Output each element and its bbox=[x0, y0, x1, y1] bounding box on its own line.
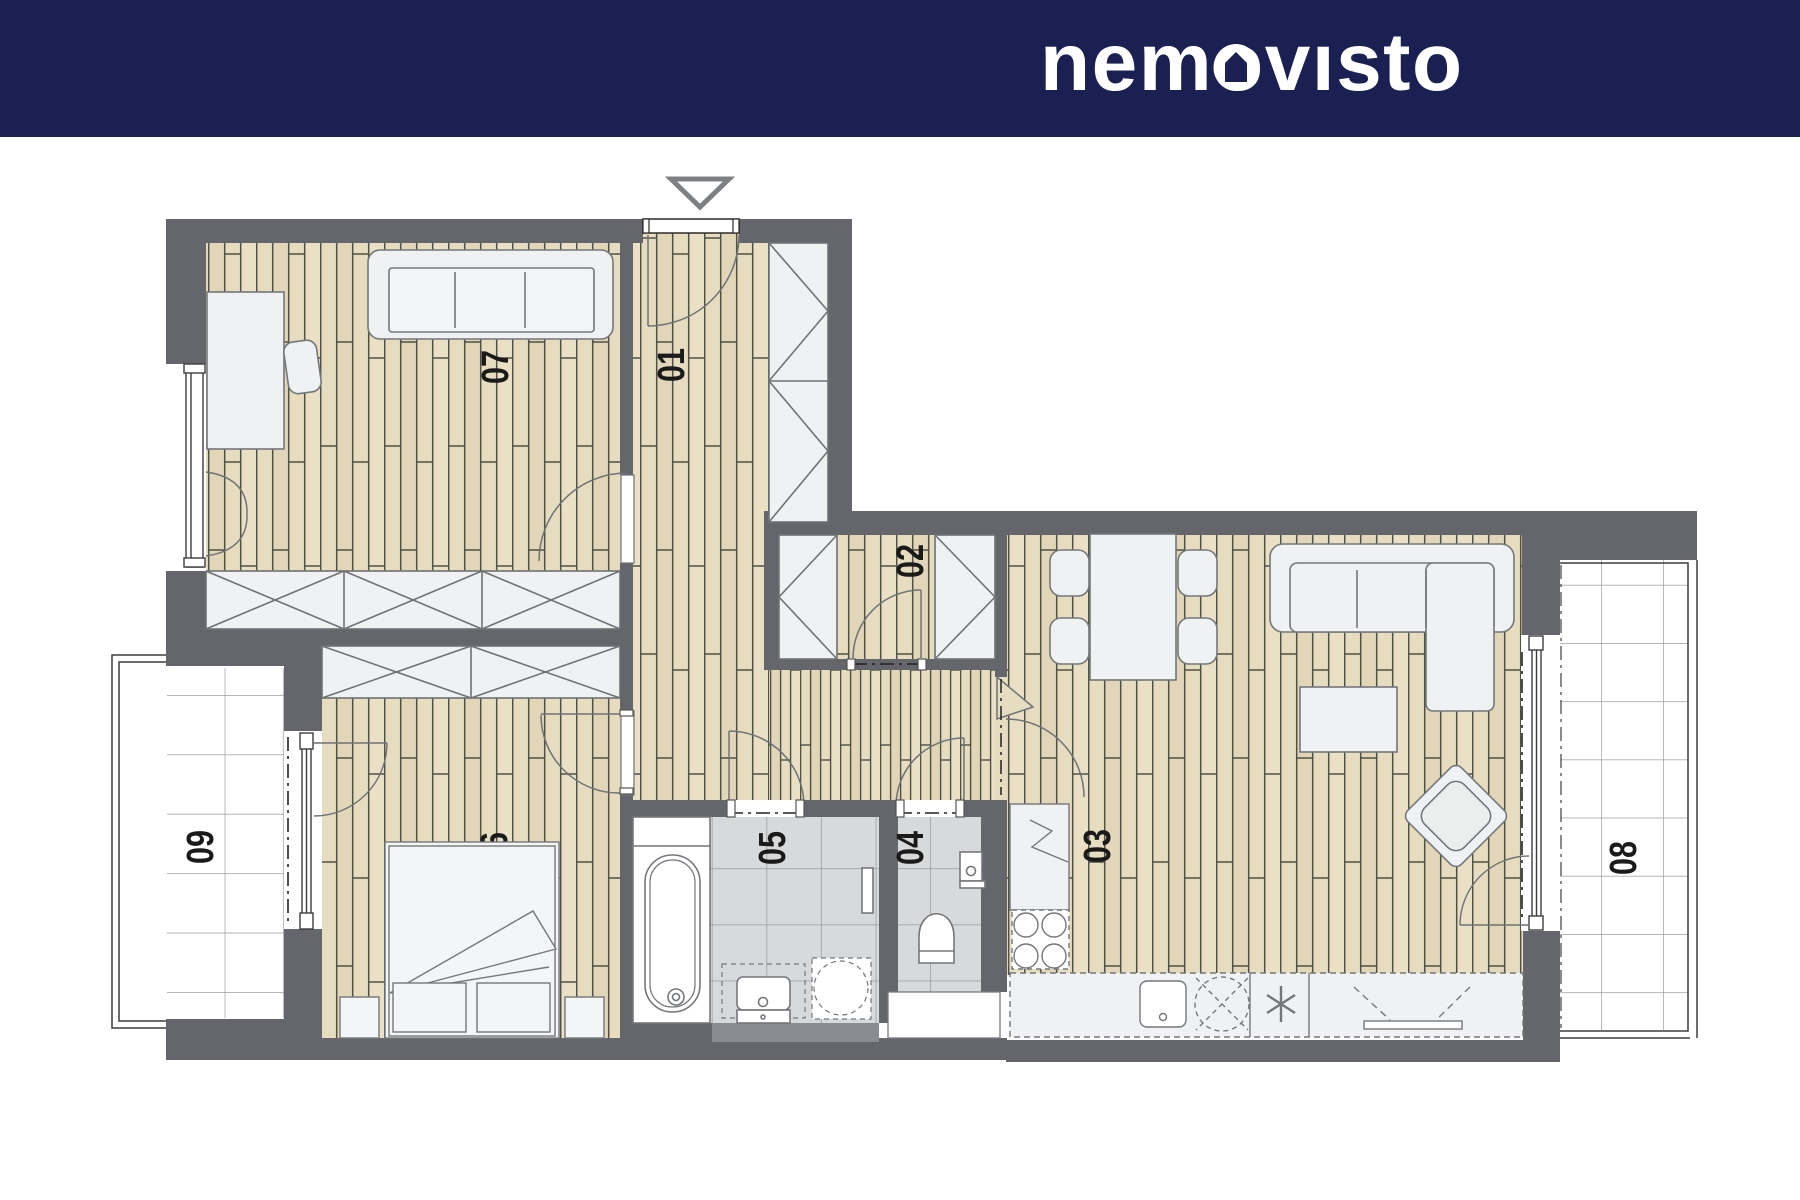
svg-text:01: 01 bbox=[651, 348, 693, 382]
svg-text:05: 05 bbox=[752, 831, 794, 865]
svg-text:02: 02 bbox=[890, 544, 932, 578]
svg-text:07: 07 bbox=[475, 350, 517, 384]
svg-text:08: 08 bbox=[1603, 841, 1645, 875]
svg-text:04: 04 bbox=[890, 831, 932, 865]
svg-text:03: 03 bbox=[1077, 829, 1119, 863]
svg-text:09: 09 bbox=[180, 830, 222, 864]
